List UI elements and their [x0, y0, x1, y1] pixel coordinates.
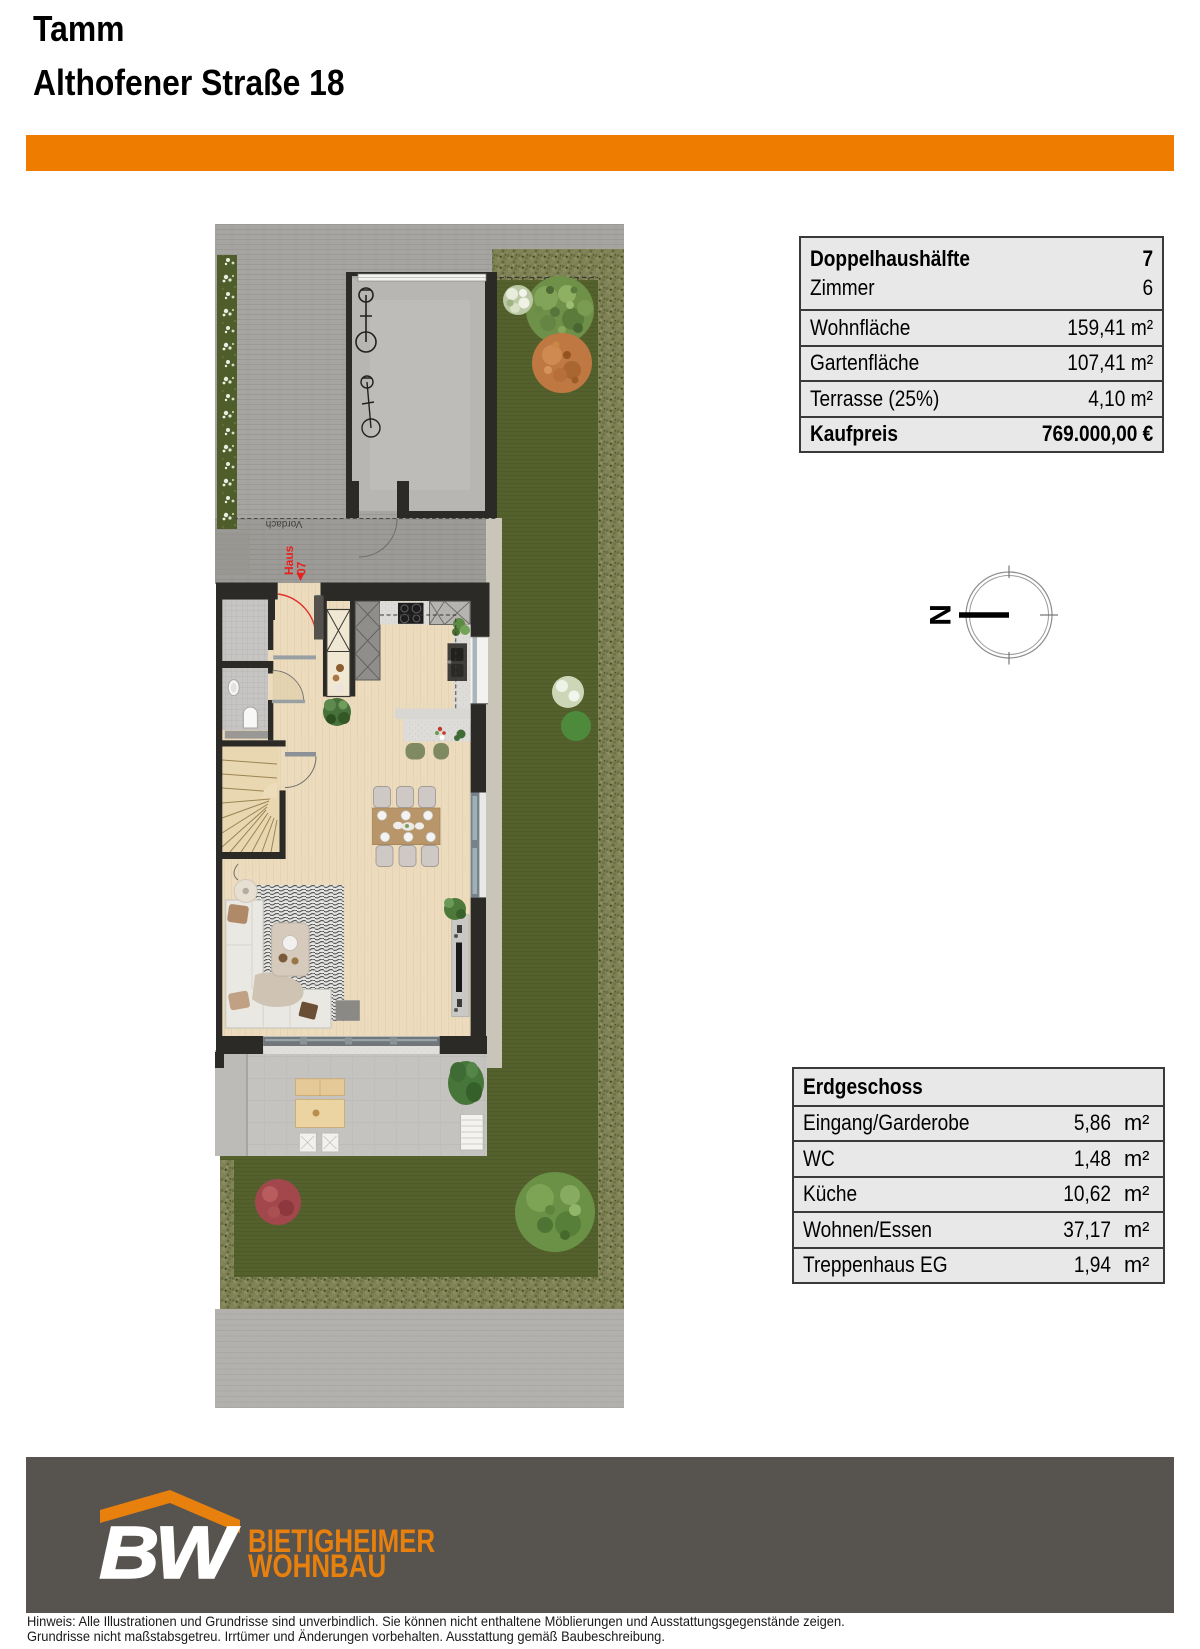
- svg-text:BW: BW: [99, 1511, 241, 1590]
- svg-text:N: N: [923, 604, 956, 626]
- svg-text:07: 07: [295, 561, 309, 575]
- svg-text:WOHNBAU: WOHNBAU: [248, 1550, 386, 1585]
- svg-text:Vordach: Vordach: [266, 518, 303, 529]
